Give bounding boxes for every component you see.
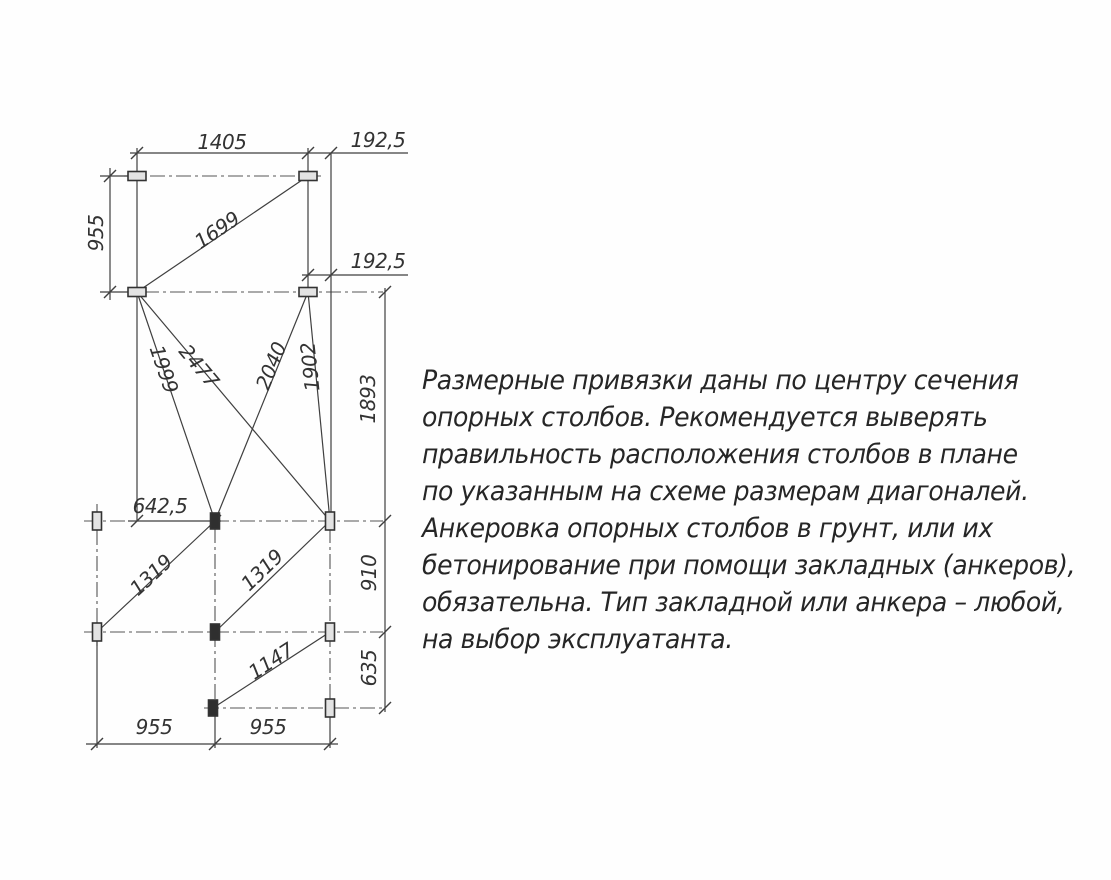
post-marker [299, 288, 317, 297]
post-marker [326, 512, 335, 530]
dim-label-right-635: 635 [357, 650, 381, 687]
post-marker [128, 288, 146, 297]
note-block: Размерные привязки даны по центру сечени… [422, 362, 1017, 658]
drawing-sheet: 1405 192,5 955 1699 192,5 1999 2477 2040… [0, 0, 1111, 880]
note-line: правильность расположения столбов в план… [422, 436, 1017, 473]
dim-label-mid-offset: 192,5 [351, 249, 406, 273]
post-marker [211, 513, 220, 529]
dimension-ticks [91, 147, 391, 750]
post-marker [326, 699, 335, 717]
note-line: бетонирование при помощи закладных (анке… [422, 547, 1017, 584]
dim-label-top-width: 1405 [198, 130, 247, 154]
post-marker [128, 172, 146, 181]
dim-label-left-height: 955 [84, 215, 108, 252]
post-marker [326, 623, 335, 641]
note-line: обязательна. Тип закладной или анкера – … [422, 584, 1017, 621]
note-line: Размерные привязки даны по центру сечени… [422, 362, 1017, 399]
post-marker [209, 700, 218, 716]
dim-label-diag-1902: 1902 [296, 341, 325, 392]
dim-label-right-1893: 1893 [356, 375, 380, 424]
post-marker [93, 512, 102, 530]
post-marker [93, 623, 102, 641]
post-marker [299, 172, 317, 181]
center-lines [84, 176, 383, 712]
post-marker [211, 624, 220, 640]
note-line: Анкеровка опорных столбов в грунт, или и… [422, 510, 1017, 547]
note-line: на выбор эксплуатанта. [422, 621, 1017, 658]
note-line: по указанным на схеме размерам диагонале… [422, 473, 1017, 510]
dim-label-center-offset: 642,5 [133, 494, 188, 518]
dim-label-top-offset: 192,5 [351, 128, 406, 152]
dim-label-right-910: 910 [357, 555, 381, 592]
note-line: опорных столбов. Рекомендуется выверять [422, 399, 1017, 436]
dim-label-bottom-955-right: 955 [250, 715, 287, 739]
dim-label-bottom-955-left: 955 [136, 715, 173, 739]
post-markers [93, 172, 335, 718]
